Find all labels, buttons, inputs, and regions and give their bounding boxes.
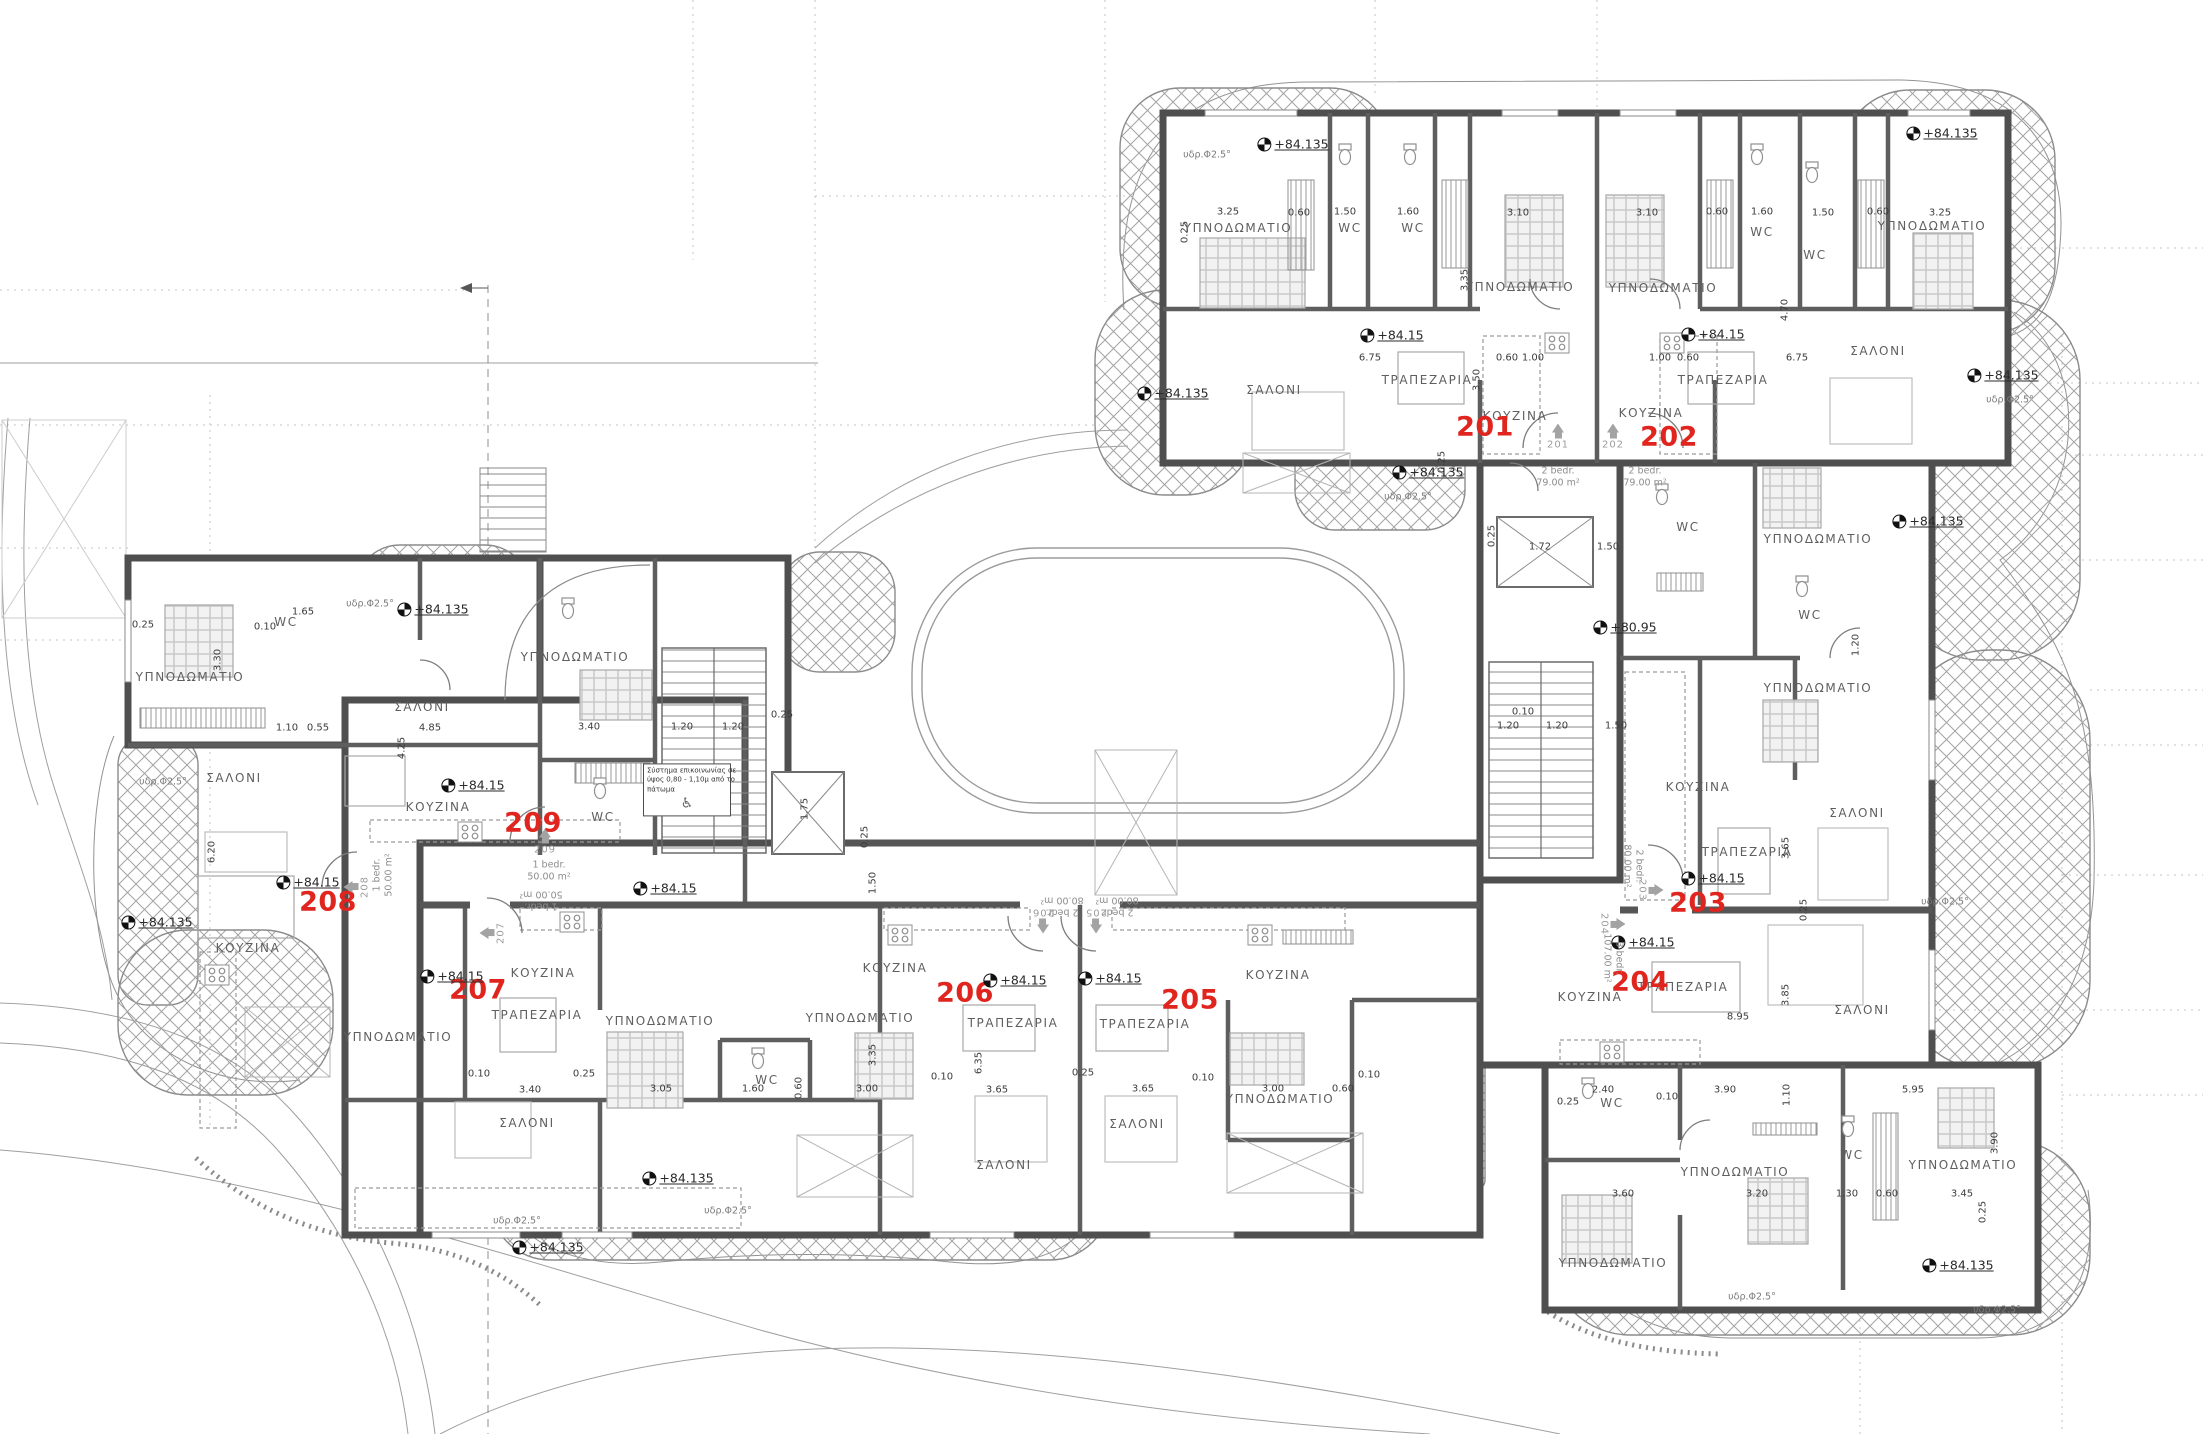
dimension-label: 3.10 — [1507, 208, 1529, 219]
apartment-info: 2 bedr.79.00 m² — [1623, 466, 1666, 491]
elevation-marker: +80.95 — [1593, 620, 1656, 635]
apartment-info: 2 bedr.80.00 m² — [1095, 893, 1138, 918]
elevation-value: +84.135 — [659, 1171, 713, 1186]
dimension-label: 3.25 — [1929, 208, 1951, 219]
room-label: ΥΠΝΟΔΩΜΑΤΙΟ — [344, 1030, 453, 1044]
dimension-label: 1.75 — [800, 798, 811, 820]
dimension-label: 1.20 — [722, 722, 744, 733]
dimension-label: 4.85 — [419, 723, 441, 734]
elevation-marker: +84.135 — [1967, 368, 2038, 383]
elevation-marker: +84.15 — [1681, 871, 1744, 886]
dimension-label: 1.72 — [1529, 542, 1551, 553]
apartment-number: 203 — [1669, 888, 1727, 919]
room-label: ΤΡΑΠΕΖΑΡΙΑ — [968, 1016, 1059, 1030]
room-label: ΥΠΝΟΔΩΜΑΤΙΟ — [1466, 280, 1575, 294]
elevation-value: +80.95 — [1610, 620, 1656, 635]
dimension-label: 3.05 — [650, 1084, 672, 1095]
dimension-label: 0.10 — [468, 1069, 490, 1080]
room-label: ΣΑΛΟΝΙ — [1829, 806, 1885, 820]
entry-door-number: 209 — [534, 845, 556, 856]
dimension-label: 3.90 — [1990, 1132, 2001, 1154]
room-label: ΥΠΝΟΔΩΜΑΤΙΟ — [1764, 681, 1873, 695]
dimension-label: 3.45 — [1951, 1189, 1973, 1200]
entry-arrow-stem — [1093, 919, 1100, 925]
room-label: WC — [1750, 225, 1773, 239]
entry-arrow-icon — [480, 927, 489, 939]
entry-arrow-stem — [1611, 921, 1617, 928]
entry-arrow-stem — [1610, 433, 1617, 439]
elevation-marker: +84.15 — [1078, 971, 1141, 986]
elevation-value: +84.15 — [458, 778, 504, 793]
room-label: ΣΑΛΟΝΙ — [206, 771, 262, 785]
room-label: ΥΠΝΟΔΩΜΑΤΙΟ — [1764, 532, 1873, 546]
dimension-label: 3.30 — [213, 649, 224, 671]
room-label: ΣΑΛΟΝΙ — [499, 1116, 555, 1130]
room-label: ΚΟΥΖΙΝΑ — [511, 966, 576, 980]
floor-plan-page: ΥΠΝΟΔΩΜΑΤΙΟWCWCΥΠΝΟΔΩΜΑΤΙΟΥΠΝΟΔΩΜΑΤΙΟWCW… — [0, 0, 2203, 1434]
dimension-label: 1.30 — [1836, 1189, 1858, 1200]
dimension-label: 1.65 — [292, 607, 314, 618]
apartment-info: 3 bedr.107.00 m² — [1600, 933, 1625, 982]
room-label: ΥΠΝΟΔΩΜΑΤΙΟ — [1184, 221, 1293, 235]
room-label: WC — [1338, 221, 1361, 235]
room-label: WC — [1401, 221, 1424, 235]
room-label: ΚΟΥΖΙΝΑ — [1619, 406, 1684, 420]
entry-arrow-icon — [1090, 925, 1102, 934]
elevation-value: +84.135 — [138, 915, 192, 930]
dimension-label: 0.60 — [1876, 1189, 1898, 1200]
dimension-label: 0.55 — [307, 723, 329, 734]
dimension-label: 0.60 — [1496, 353, 1518, 364]
room-label: ΥΠΝΟΔΩΜΑΤΙΟ — [521, 650, 630, 664]
dimension-label: 0.60 — [1706, 207, 1728, 218]
dimension-label: 8.95 — [1727, 1012, 1749, 1023]
elevation-value: +84.15 — [437, 969, 483, 984]
dimension-label: 0.10 — [1358, 1070, 1380, 1081]
level-marker-icon — [1257, 137, 1271, 151]
dimension-label: 0.60 — [1867, 207, 1889, 218]
apartment-info: 2 bedr.80.00 m² — [1620, 844, 1645, 887]
dimension-label: 0.60 — [1332, 1084, 1354, 1095]
level-marker-icon — [1681, 871, 1695, 885]
dimension-label: 0.25 — [1180, 221, 1191, 243]
elevation-marker: +84.135 — [1392, 465, 1463, 480]
elevation-marker: +84.135 — [512, 1240, 583, 1255]
entry-arrow-stem — [1649, 887, 1655, 894]
dimension-label: 1.50 — [1334, 207, 1356, 218]
dimension-label: 6.35 — [974, 1052, 985, 1074]
apartment-info: 2 bedr.79.00 m² — [1536, 466, 1579, 491]
elevation-value: +84.135 — [1939, 1258, 1993, 1273]
room-label: ΥΠΝΟΔΩΜΑΤΙΟ — [606, 1014, 715, 1028]
dimension-label: 3.20 — [1746, 1189, 1768, 1200]
entry-door-number: 202 — [1602, 440, 1624, 451]
elevation-value: +84.135 — [1984, 368, 2038, 383]
elevation-value: +84.135 — [1909, 514, 1963, 529]
room-label: ΤΡΑΠΕΖΑΡΙΑ — [1382, 373, 1473, 387]
slope-label: υδρ.Φ2.5° — [1183, 150, 1231, 161]
level-marker-icon — [642, 1171, 656, 1185]
elevation-marker: +84.15 — [983, 973, 1046, 988]
elevation-marker: +84.135 — [1257, 137, 1328, 152]
accessibility-note: Σύστημα επικοινωνίας σεύψος 0,80 - 1,10μ… — [643, 763, 731, 816]
room-label: ΚΟΥΖΙΝΑ — [406, 800, 471, 814]
elevation-value: +84.15 — [1000, 973, 1046, 988]
apartment-info: 1 bedr.50.00 m² — [372, 853, 397, 896]
slope-label: υδρ.Φ2.5° — [704, 1206, 752, 1217]
level-marker-icon — [1392, 465, 1406, 479]
room-label: ΤΡΑΠΕΖΑΡΙΑ — [1702, 845, 1793, 859]
dimension-label: 3.00 — [856, 1084, 878, 1095]
elevation-marker: +84.15 — [1681, 327, 1744, 342]
dimension-label: 1.20 — [1497, 721, 1519, 732]
dimension-label: 3.60 — [1612, 1189, 1634, 1200]
elevation-value: +84.15 — [1377, 328, 1423, 343]
wheelchair-icon: ♿ — [647, 795, 727, 814]
room-label: ΥΠΝΟΔΩΜΑΤΙΟ — [1878, 219, 1987, 233]
room-label: ΥΠΝΟΔΩΜΑΤΙΟ — [136, 670, 245, 684]
entry-arrow-icon — [1607, 424, 1619, 433]
slope-label: υδρ.Φ2.5° — [1728, 1292, 1776, 1303]
dimension-label: 6.20 — [207, 841, 218, 863]
level-marker-icon — [1593, 620, 1607, 634]
dimension-label: 0.25 — [132, 620, 154, 631]
room-label: ΥΠΝΟΔΩΜΑΤΙΟ — [1609, 281, 1718, 295]
dimension-label: 3.90 — [1714, 1085, 1736, 1096]
dimension-label: 0.25 — [1557, 1097, 1579, 1108]
apartment-info: 1 bedr.50.00 m² — [527, 860, 570, 885]
dimension-label: 3.25 — [1217, 207, 1239, 218]
dimension-label: 3.85 — [1781, 984, 1792, 1006]
room-label: ΚΟΥΖΙΝΑ — [1666, 780, 1731, 794]
elevation-marker: +84.15 — [633, 881, 696, 896]
slope-label: υδρ.Φ2.5° — [1921, 897, 1969, 908]
dimension-label: 0.25 — [1072, 1068, 1094, 1079]
room-label: ΥΠΝΟΔΩΜΑΤΙΟ — [1909, 1158, 2018, 1172]
dimension-label: 0.25 — [860, 826, 871, 848]
room-label: ΥΠΝΟΔΩΜΑΤΙΟ — [806, 1011, 915, 1025]
room-label: WC — [1798, 608, 1821, 622]
apartment-number: 201 — [1456, 412, 1514, 443]
dimension-label: 5.95 — [1902, 1085, 1924, 1096]
level-marker-icon — [983, 973, 997, 987]
elevation-value: +84.15 — [293, 875, 339, 890]
dimension-label: 1.60 — [742, 1084, 764, 1095]
elevation-value: +84.15 — [1698, 871, 1744, 886]
elevation-marker: +84.15 — [441, 778, 504, 793]
entry-door-number: 207 — [496, 922, 507, 944]
dimension-label: 3.65 — [1132, 1084, 1154, 1095]
room-label: ΣΑΛΟΝΙ — [1109, 1117, 1165, 1131]
elevation-value: +84.135 — [1409, 465, 1463, 480]
entry-door-number: 208 — [360, 876, 371, 898]
dimension-label: 1.20 — [1546, 721, 1568, 732]
slope-label: υδρ.Φ2.5° — [346, 599, 394, 610]
dimension-label: 0.60 — [1677, 353, 1699, 364]
room-label: WC — [591, 810, 614, 824]
entry-arrow-icon — [1617, 918, 1626, 930]
room-label: ΣΑΛΟΝΙ — [394, 700, 450, 714]
level-marker-icon — [420, 969, 434, 983]
dimension-label: 1.10 — [1782, 1084, 1793, 1106]
dimension-label: 6.75 — [1786, 353, 1808, 364]
dimension-label: 0.10 — [931, 1072, 953, 1083]
elevation-marker: +84.135 — [1892, 514, 1963, 529]
dimension-label: 1.10 — [276, 723, 298, 734]
elevation-marker: +84.135 — [642, 1171, 713, 1186]
elevation-marker: +84.135 — [1922, 1258, 1993, 1273]
apartment-number: 202 — [1640, 422, 1698, 453]
room-label: WC — [1600, 1096, 1623, 1110]
elevation-marker: +84.15 — [1360, 328, 1423, 343]
room-label: ΚΟΥΖΙΝΑ — [216, 941, 281, 955]
entry-arrow-icon — [539, 829, 551, 838]
dimension-label: 1.50 — [1812, 208, 1834, 219]
entry-arrow-icon — [1552, 424, 1564, 433]
dimension-label: 1.00 — [1522, 353, 1544, 364]
entry-door-marker: 202 — [1602, 424, 1624, 451]
elevation-marker: +84.135 — [1137, 386, 1208, 401]
dimension-label: 3.35 — [868, 1044, 879, 1066]
dimension-label: 0.60 — [1288, 208, 1310, 219]
dimension-label: 1.50 — [1605, 721, 1627, 732]
level-marker-icon — [1922, 1258, 1936, 1272]
dimension-label: 3.40 — [519, 1085, 541, 1096]
dimension-label: 4.25 — [397, 737, 408, 759]
dimension-label: 0.25 — [1799, 899, 1810, 921]
entry-door-marker: 204 — [1599, 913, 1626, 935]
level-marker-icon — [1967, 368, 1981, 382]
entry-arrow-icon — [1655, 884, 1664, 896]
entry-door-marker: 208 — [344, 876, 371, 898]
level-marker-icon — [397, 602, 411, 616]
elevation-value: +84.15 — [1698, 327, 1744, 342]
dimension-label: 4.70 — [1780, 299, 1791, 321]
dimension-label: 3.40 — [578, 722, 600, 733]
elevation-value: +84.135 — [1274, 137, 1328, 152]
level-marker-icon — [441, 778, 455, 792]
elevation-value: +84.135 — [414, 602, 468, 617]
room-label: ΤΡΑΠΕΖΑΡΙΑ — [1678, 373, 1769, 387]
entry-door-marker: 209 — [534, 829, 556, 856]
elevation-value: +84.15 — [1628, 935, 1674, 950]
dimension-label: 1.50 — [1597, 542, 1619, 553]
dimension-label: 1.20 — [671, 722, 693, 733]
entry-arrow-stem — [353, 884, 359, 891]
dimension-label: 1.60 — [1397, 207, 1419, 218]
dimension-label: 0.10 — [1512, 707, 1534, 718]
dimension-label: 0.25 — [573, 1069, 595, 1080]
room-label: ΥΠΝΟΔΩΜΑΤΙΟ — [1681, 1165, 1790, 1179]
level-marker-icon — [1681, 327, 1695, 341]
dimension-label: 0.25 — [1487, 525, 1498, 547]
entry-door-marker: 207 — [480, 922, 507, 944]
elevation-value: +84.15 — [1095, 971, 1141, 986]
elevation-value: +84.135 — [1154, 386, 1208, 401]
elevation-marker: +84.135 — [397, 602, 468, 617]
dimension-label: 3.00 — [1262, 1084, 1284, 1095]
slope-label: υδρ.Φ2.5° — [493, 1216, 541, 1227]
room-label: ΚΟΥΖΙΝΑ — [1246, 968, 1311, 982]
room-label: ΣΑΛΟΝΙ — [976, 1158, 1032, 1172]
dimension-label: 3.50 — [1472, 369, 1483, 391]
level-marker-icon — [1892, 514, 1906, 528]
entry-arrow-stem — [1555, 433, 1562, 439]
entry-door-number: 204 — [1599, 913, 1610, 935]
entry-arrow-icon — [344, 881, 353, 893]
elevation-marker: +84.15 — [276, 875, 339, 890]
apartment-number: 205 — [1161, 985, 1219, 1016]
entry-arrow-stem — [542, 838, 549, 844]
dimension-label: 1.20 — [1851, 634, 1862, 656]
room-label: WC — [1676, 520, 1699, 534]
room-label: ΣΑΛΟΝΙ — [1246, 383, 1302, 397]
level-marker-icon — [1906, 126, 1920, 140]
room-label: WC — [1803, 248, 1826, 262]
annotation-layer: ΥΠΝΟΔΩΜΑΤΙΟWCWCΥΠΝΟΔΩΜΑΤΙΟΥΠΝΟΔΩΜΑΤΙΟWCW… — [0, 0, 2203, 1434]
apartment-info: 2 bedr.80.00 m² — [1040, 893, 1083, 918]
level-marker-icon — [276, 875, 290, 889]
room-label: ΚΟΥΖΙΝΑ — [863, 961, 928, 975]
level-marker-icon — [633, 881, 647, 895]
entry-arrow-stem — [1040, 919, 1047, 925]
dimension-label: 3.65 — [1781, 837, 1792, 859]
dimension-label: 6.75 — [1359, 353, 1381, 364]
entry-door-marker: 201 — [1547, 424, 1569, 451]
level-marker-icon — [1360, 328, 1374, 342]
level-marker-icon — [512, 1240, 526, 1254]
slope-label: υδρ.Φ2.5° — [1986, 395, 2034, 406]
level-marker-icon — [1137, 386, 1151, 400]
elevation-value: +84.135 — [1923, 126, 1977, 141]
dimension-label: 1.00 — [1649, 353, 1671, 364]
dimension-label: 3.10 — [1636, 208, 1658, 219]
room-label: ΥΠΝΟΔΩΜΑΤΙΟ — [1559, 1256, 1668, 1270]
dimension-label: 1.60 — [1751, 207, 1773, 218]
dimension-label: 0.25 — [1978, 1201, 1989, 1223]
dimension-label: 3.65 — [986, 1085, 1008, 1096]
slope-label: υδρ.Φ2.5° — [1973, 1305, 2021, 1316]
entry-door-number: 201 — [1547, 440, 1569, 451]
room-label: ΤΡΑΠΕΖΑΡΙΑ — [1100, 1017, 1191, 1031]
level-marker-icon — [121, 915, 135, 929]
slope-label: υδρ.Φ2.5° — [1384, 492, 1432, 503]
entry-arrow-stem — [489, 930, 495, 937]
elevation-value: +84.15 — [650, 881, 696, 896]
slope-label: υδρ.Φ2.5° — [139, 777, 187, 788]
room-label: ΣΑΛΟΝΙ — [1850, 344, 1906, 358]
elevation-marker: +84.135 — [1906, 126, 1977, 141]
dimension-label: 0.10 — [1656, 1092, 1678, 1103]
entry-arrow-icon — [1037, 925, 1049, 934]
dimension-label: 0.60 — [794, 1077, 805, 1099]
dimension-label: 0.10 — [254, 622, 276, 633]
room-label: ΣΑΛΟΝΙ — [1834, 1003, 1890, 1017]
elevation-value: +84.135 — [529, 1240, 583, 1255]
apartment-info: 1 bedr.50.00 m² — [519, 887, 562, 912]
room-label: WC — [1840, 1148, 1863, 1162]
dimension-label: 2.40 — [1592, 1085, 1614, 1096]
dimension-label: 1.50 — [868, 872, 879, 894]
room-label: ΤΡΑΠΕΖΑΡΙΑ — [492, 1008, 583, 1022]
elevation-marker: +84.15 — [420, 969, 483, 984]
dimension-label: 3.35 — [1460, 269, 1471, 291]
dimension-label: 0.25 — [771, 710, 793, 721]
level-marker-icon — [1078, 971, 1092, 985]
elevation-marker: +84.135 — [121, 915, 192, 930]
dimension-label: 0.10 — [1192, 1073, 1214, 1084]
